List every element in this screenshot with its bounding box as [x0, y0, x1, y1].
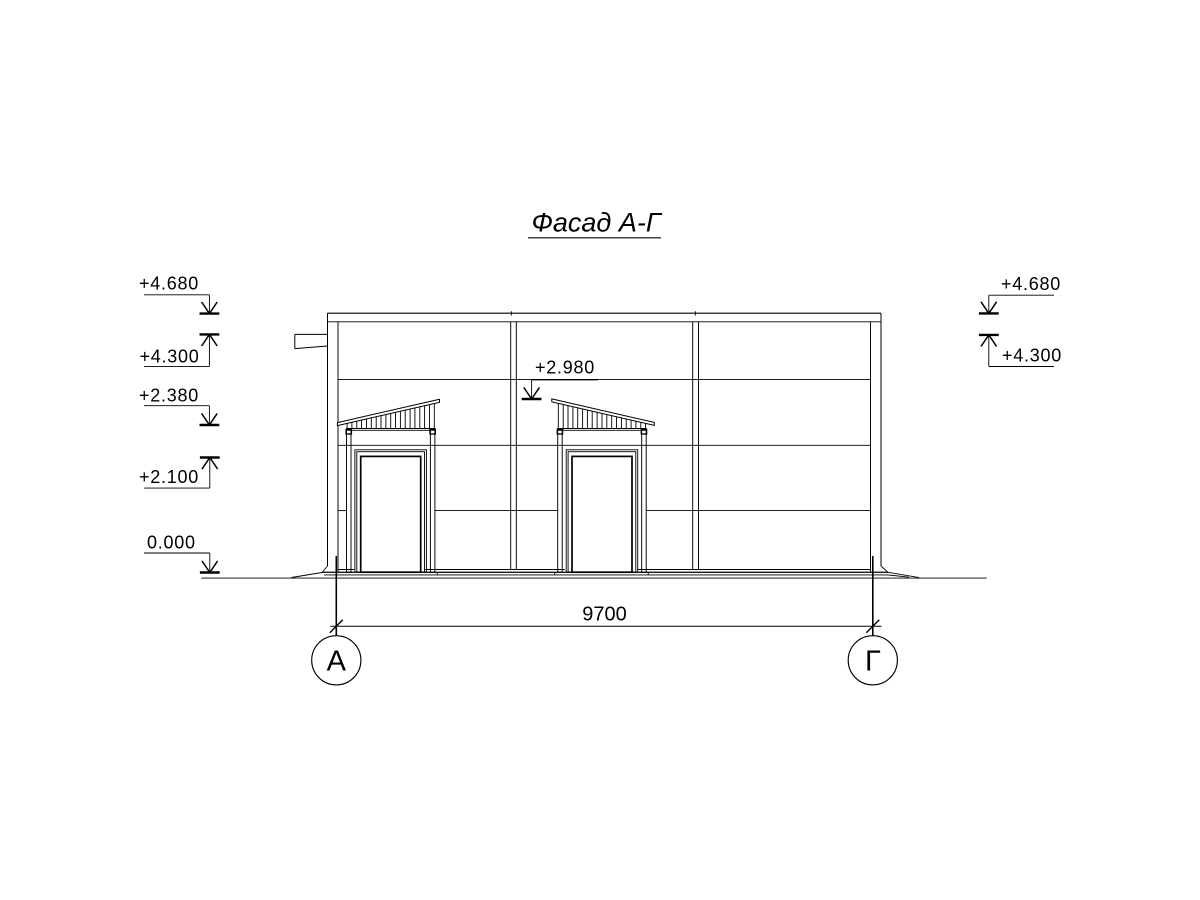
svg-text:+4.680: +4.680 — [1001, 274, 1061, 294]
svg-text:+4.300: +4.300 — [1002, 345, 1062, 365]
svg-text:9700: 9700 — [582, 604, 627, 626]
svg-text:+2.980: +2.980 — [535, 358, 595, 378]
svg-text:0.000: 0.000 — [147, 533, 196, 553]
svg-text:+4.300: +4.300 — [140, 347, 200, 367]
svg-text:Фасад А-Г: Фасад А-Г — [531, 208, 662, 238]
svg-text:+2.100: +2.100 — [139, 467, 199, 487]
svg-text:+2.380: +2.380 — [139, 386, 199, 406]
svg-text:Г: Г — [865, 646, 881, 678]
svg-text:А: А — [327, 646, 347, 678]
svg-text:+4.680: +4.680 — [139, 273, 199, 293]
